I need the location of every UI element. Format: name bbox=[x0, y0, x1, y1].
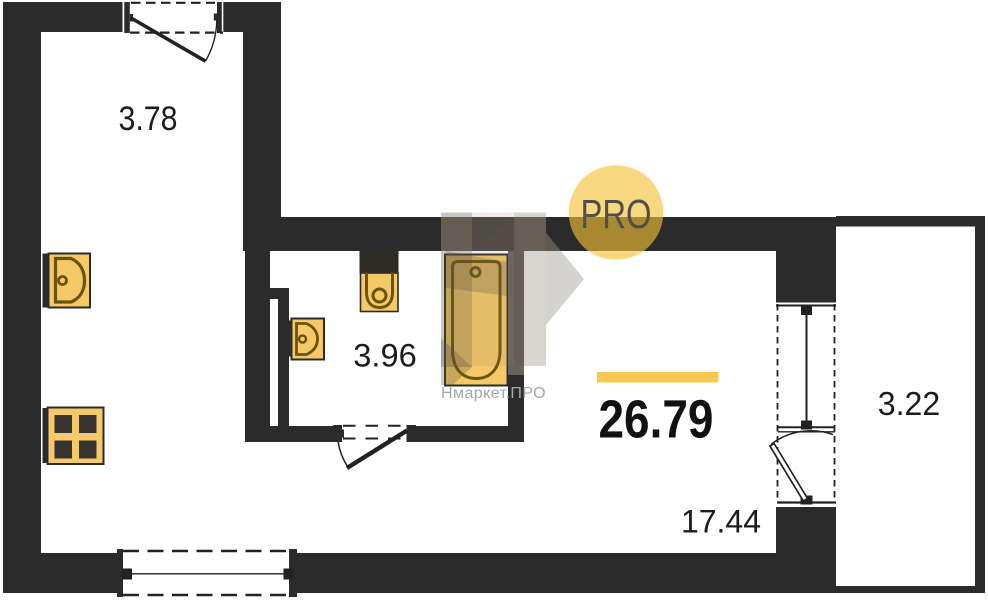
svg-text:3.96: 3.96 bbox=[353, 338, 417, 374]
svg-text:3.78: 3.78 bbox=[119, 100, 178, 138]
svg-text:Нмаркет.ПРО: Нмаркет.ПРО bbox=[441, 385, 546, 402]
svg-text:17.44: 17.44 bbox=[681, 504, 761, 540]
svg-text:3.22: 3.22 bbox=[878, 386, 941, 423]
svg-text:PRO: PRO bbox=[581, 191, 652, 237]
svg-text:26.79: 26.79 bbox=[599, 391, 714, 450]
